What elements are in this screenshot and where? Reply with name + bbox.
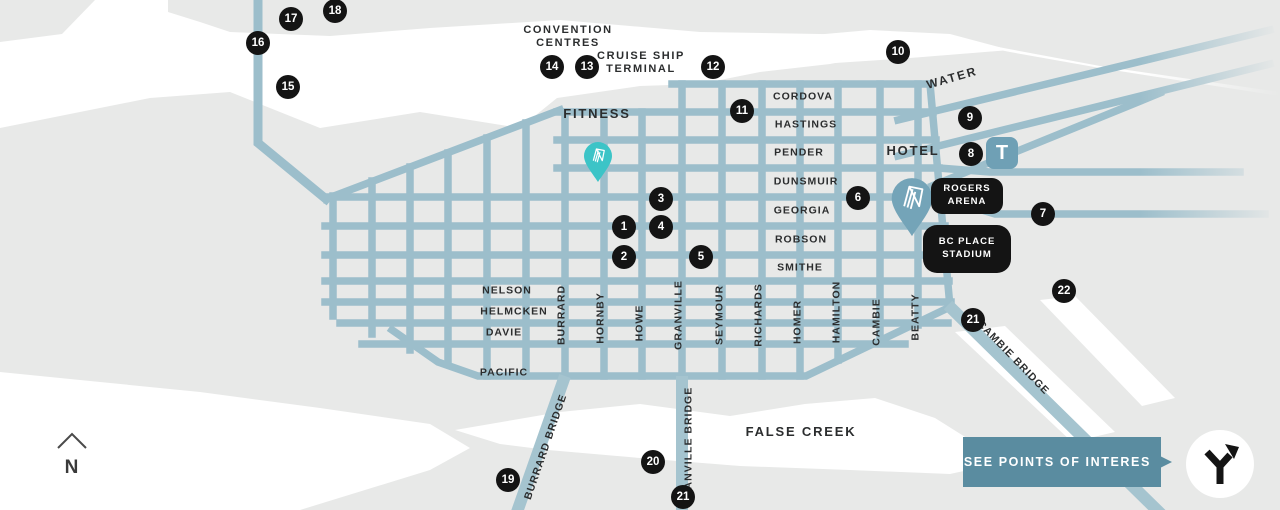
marker-14[interactable]: 14: [540, 55, 564, 79]
marker-20[interactable]: 20: [641, 450, 665, 474]
marker-2[interactable]: 2: [612, 245, 636, 269]
marker-21-granville[interactable]: 21: [671, 485, 695, 509]
marker-10[interactable]: 10: [886, 40, 910, 64]
marker-22[interactable]: 22: [1052, 279, 1076, 303]
marker-17[interactable]: 17: [279, 7, 303, 31]
marker-5[interactable]: 5: [689, 245, 713, 269]
marker-4[interactable]: 4: [649, 215, 673, 239]
marker-16[interactable]: 16: [246, 31, 270, 55]
marker-7[interactable]: 7: [1031, 202, 1055, 226]
marker-8[interactable]: 8: [959, 142, 983, 166]
north-chevron-icon: [50, 430, 94, 450]
marker-11[interactable]: 11: [730, 99, 754, 123]
map-canvas: [0, 0, 1280, 510]
marker-6[interactable]: 6: [846, 186, 870, 210]
marker-21-cambie[interactable]: 21: [961, 308, 985, 332]
see-points-of-interest-button[interactable]: SEE POINTS OF INTEREST: [963, 437, 1161, 487]
downtown-map: CONVENTION CENTRESCRUISE SHIP TERMINALFI…: [0, 0, 1280, 510]
road-fork-icon: [1198, 440, 1242, 488]
marker-12[interactable]: 12: [701, 55, 725, 79]
points-of-interest-circle-button[interactable]: [1186, 430, 1254, 498]
marker-18[interactable]: 18: [323, 0, 347, 23]
marker-13[interactable]: 13: [575, 55, 599, 79]
compass: N: [48, 430, 96, 486]
marker-15[interactable]: 15: [276, 75, 300, 99]
street-fade-overlay: [1140, 0, 1280, 266]
marker-3[interactable]: 3: [649, 187, 673, 211]
transit-station-icon[interactable]: T: [986, 137, 1018, 169]
marker-9[interactable]: 9: [958, 106, 982, 130]
compass-north-label: N: [48, 457, 96, 479]
bc-place-stadium-badge[interactable]: BC PLACE STADIUM: [923, 225, 1011, 273]
rogers-arena-badge[interactable]: ROGERS ARENA: [931, 178, 1003, 214]
see-points-of-interest-label: SEE POINTS OF INTEREST: [964, 455, 1160, 469]
marker-19[interactable]: 19: [496, 468, 520, 492]
marker-1[interactable]: 1: [612, 215, 636, 239]
